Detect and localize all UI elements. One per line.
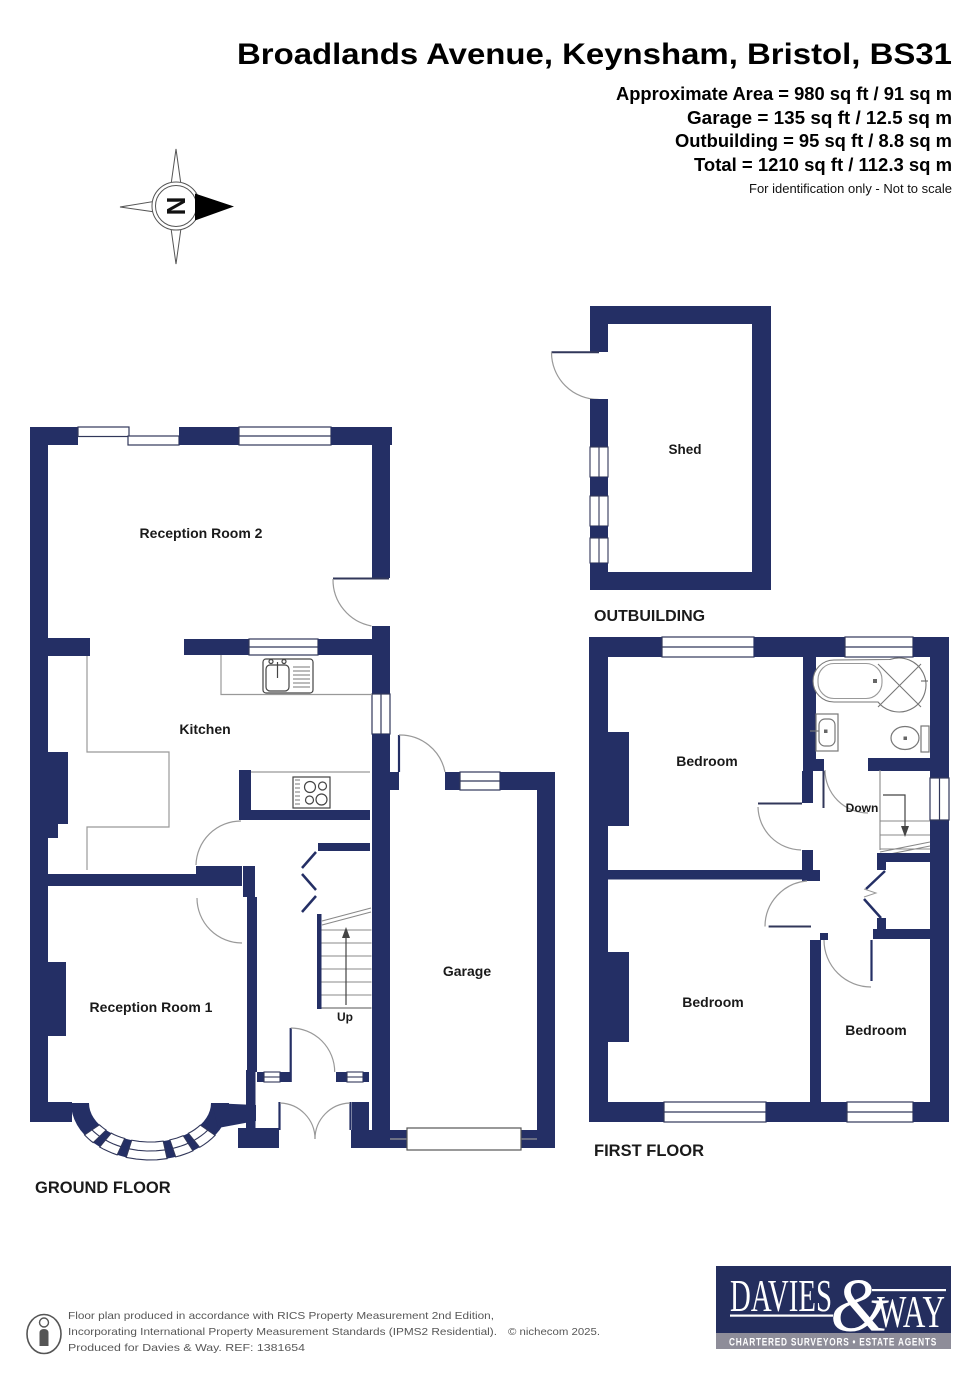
svg-text:Down: Down — [846, 801, 879, 815]
svg-text:Floor plan produced in accorda: Floor plan produced in accordance with R… — [68, 1311, 494, 1322]
svg-text:Garage = 135 sq ft / 12.5 sq m: Garage = 135 sq ft / 12.5 sq m — [687, 108, 952, 128]
svg-text:OUTBUILDING: OUTBUILDING — [594, 608, 705, 625]
svg-text:Approximate Area = 980 sq ft /: Approximate Area = 980 sq ft / 91 sq m — [616, 84, 952, 104]
svg-text:Incorporating International Pr: Incorporating International Property Mea… — [68, 1327, 497, 1338]
svg-text:Total = 1210 sq ft / 112.3 sq: Total = 1210 sq ft / 112.3 sq m — [694, 155, 952, 175]
svg-text:Reception Room 2: Reception Room 2 — [140, 525, 263, 541]
svg-text:CHARTERED SURVEYORS • ESTATE A: CHARTERED SURVEYORS • ESTATE AGENTS — [729, 1337, 937, 1349]
svg-text:Outbuilding = 95 sq ft / 8.8 s: Outbuilding = 95 sq ft / 8.8 sq m — [675, 131, 952, 151]
svg-text:WAY: WAY — [877, 1286, 945, 1337]
svg-text:Produced for Davies & Way. R: Produced for Davies & Way. REF: 1381654 — [68, 1343, 305, 1354]
svg-text:Shed: Shed — [668, 442, 701, 457]
svg-text:Bedroom: Bedroom — [676, 753, 737, 769]
svg-text:Up: Up — [337, 1010, 353, 1024]
svg-text:For identification only - Not: For identification only - Not to scale — [749, 182, 952, 196]
svg-text:N: N — [161, 197, 191, 216]
svg-text:Broadlands Avenue, Keynsham, B: Broadlands Avenue, Keynsham, Bristol, BS… — [237, 38, 952, 71]
svg-text:Reception Room 1: Reception Room 1 — [90, 999, 213, 1015]
svg-text:GROUND FLOOR: GROUND FLOOR — [35, 1179, 171, 1197]
svg-text:Bedroom: Bedroom — [845, 1022, 906, 1038]
svg-text:Garage: Garage — [443, 963, 491, 979]
svg-text:© nichecom 2025.: © nichecom 2025. — [508, 1327, 600, 1338]
svg-text:Kitchen: Kitchen — [179, 721, 230, 737]
svg-text:FIRST FLOOR: FIRST FLOOR — [594, 1142, 704, 1160]
svg-text:DAVIES: DAVIES — [730, 1270, 832, 1321]
svg-text:Bedroom: Bedroom — [682, 994, 743, 1010]
